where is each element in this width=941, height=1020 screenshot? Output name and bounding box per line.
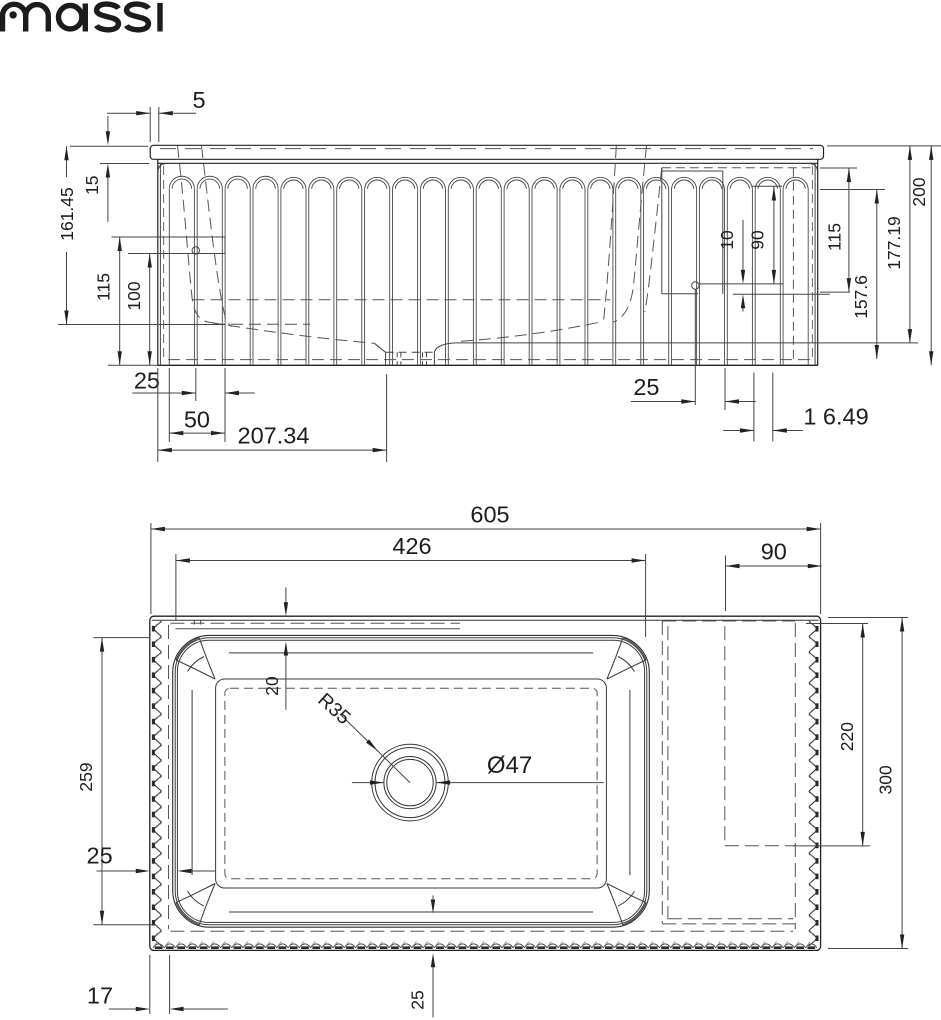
svg-text:25: 25 [87, 842, 113, 868]
svg-text:220: 220 [837, 722, 857, 751]
svg-text:200: 200 [909, 177, 929, 206]
svg-text:5: 5 [192, 87, 205, 113]
svg-text:90: 90 [748, 230, 768, 250]
svg-text:25: 25 [134, 367, 160, 393]
svg-text:115: 115 [94, 273, 114, 301]
svg-text:Ø47: Ø47 [487, 752, 532, 779]
svg-text:207.34: 207.34 [238, 423, 310, 449]
svg-text:115: 115 [825, 223, 845, 251]
svg-text:20: 20 [262, 676, 282, 696]
svg-text:300: 300 [876, 765, 896, 794]
svg-text:25: 25 [408, 990, 428, 1009]
svg-text:15: 15 [82, 176, 102, 195]
svg-text:605: 605 [470, 502, 509, 528]
svg-text:161.45: 161.45 [57, 187, 77, 241]
svg-text:10: 10 [717, 230, 737, 250]
svg-text:177.19: 177.19 [884, 216, 904, 270]
svg-text:R35: R35 [313, 689, 354, 729]
svg-text:25: 25 [633, 374, 659, 400]
svg-text:100: 100 [124, 281, 144, 310]
svg-text:426: 426 [392, 533, 431, 559]
svg-text:157.6: 157.6 [851, 275, 871, 319]
svg-text:90: 90 [761, 539, 787, 565]
svg-text:1 6.49: 1 6.49 [803, 404, 868, 430]
svg-text:259: 259 [76, 762, 96, 791]
svg-text:17: 17 [87, 983, 113, 1009]
svg-text:50: 50 [184, 407, 210, 433]
